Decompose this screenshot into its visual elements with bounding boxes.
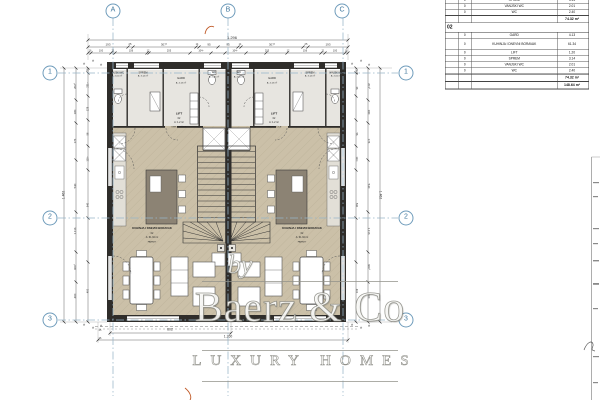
table-cell: VANJSKI WC	[472, 62, 558, 68]
table-cell	[446, 33, 459, 39]
table-cell	[446, 10, 459, 16]
table-cell: KUHINJA I DNEVNI BORAVAK	[472, 39, 558, 50]
table-cell: 0	[459, 62, 472, 68]
table-row: 148.64 m²	[446, 82, 589, 90]
table-cell: 61.34	[558, 39, 587, 50]
floor-plan-sheet: 1.29619325307⁵14959514307⁵25193161002115…	[0, 0, 600, 400]
table-cell	[472, 82, 558, 89]
kitchen-counter	[113, 133, 126, 226]
table-cell	[472, 16, 558, 23]
table-cell: 74.32 m²	[558, 75, 587, 82]
table-cell	[446, 82, 459, 89]
grid-marker-1: 1	[399, 66, 414, 81]
table-cell	[472, 75, 558, 82]
overhang-lines	[95, 327, 358, 330]
table-cell: 2.01	[558, 62, 587, 68]
grid-marker-3: 3	[43, 313, 58, 328]
table-cell: 0	[459, 50, 472, 56]
table-section-header: 02	[446, 23, 589, 33]
table-row: 0KUHINJA I DNEVNI BORAVAK61.34	[446, 39, 589, 51]
table-cell: 0	[459, 56, 472, 62]
table-row: 0WC2.40	[446, 10, 589, 16]
table-cell: 74.32 m²	[558, 16, 587, 23]
table-cell: LIFT	[472, 50, 558, 56]
grid-marker-2: 2	[43, 211, 58, 226]
table-cell: 2.01	[558, 4, 587, 10]
title-block-edge	[584, 157, 600, 400]
table-cell: 2.40	[558, 10, 587, 16]
grid-marker-1: 1	[43, 66, 58, 81]
table-cell	[446, 68, 459, 74]
signature-mark	[584, 342, 595, 351]
table-cell: 0	[459, 33, 472, 39]
room-area-table: 0SPREM3.140VANJSKI WC2.010WC2.4074.32 m²…	[445, 0, 589, 90]
lift-shaft	[203, 128, 225, 150]
grid-marker-3: 3	[399, 313, 414, 328]
table-cell	[446, 62, 459, 68]
table-cell: 0	[459, 10, 472, 16]
table-cell: GARD	[472, 33, 558, 39]
table-cell: 0	[459, 4, 472, 10]
table-cell	[446, 16, 459, 23]
table-cell: WC	[472, 68, 558, 74]
grid-marker-C: C	[335, 4, 350, 19]
table-cell: 4.13	[558, 33, 587, 39]
table-cell	[459, 75, 472, 82]
table-cell	[446, 75, 459, 82]
table-cell	[446, 4, 459, 10]
table-cell	[446, 39, 459, 50]
table-cell	[459, 82, 472, 89]
table-cell	[459, 16, 472, 23]
table-cell: 0	[459, 39, 472, 50]
table-row: 74.32 m²	[446, 16, 589, 24]
table-cell: WC	[472, 10, 558, 16]
table-cell: 0	[459, 68, 472, 74]
table-row: 74.32 m²	[446, 74, 589, 82]
grid-marker-2: 2	[399, 211, 414, 226]
table-cell	[446, 50, 459, 56]
table-row: 0WC2.40	[446, 68, 589, 74]
table-cell: 1.20	[558, 50, 587, 56]
grid-marker-A: A	[106, 4, 121, 19]
table-cell: 3.14	[558, 56, 587, 62]
grid-marker-B: B	[221, 4, 236, 19]
table-cell	[446, 56, 459, 62]
table-cell: 2.40	[558, 68, 587, 74]
table-cell: 148.64 m²	[558, 82, 587, 89]
table-cell: VANJSKI WC	[472, 4, 558, 10]
table-cell: SPREM	[472, 56, 558, 62]
